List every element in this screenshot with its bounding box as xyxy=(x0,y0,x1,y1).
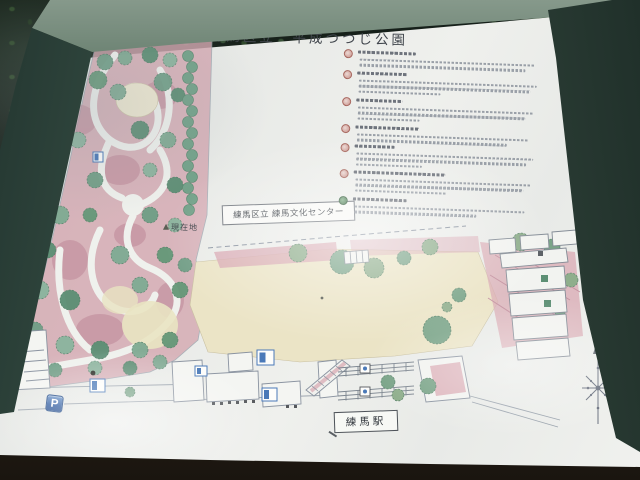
legend xyxy=(338,49,590,229)
legend-item xyxy=(340,169,586,178)
culture-center-label-text: 練馬区立 練馬文化センター xyxy=(233,205,344,221)
legend-marker-icon xyxy=(339,169,348,178)
current-location-label: 現在地 xyxy=(163,222,198,234)
legend-marker-icon xyxy=(340,143,349,152)
legend-item xyxy=(341,124,587,133)
photo-of-park-sign: 練馬区立 平成つつじ公園 練馬区立 練馬文化センター 現在地 練馬駅 P xyxy=(0,0,640,480)
legend-item xyxy=(342,97,588,106)
station-label-text: 練馬駅 xyxy=(346,413,387,429)
legend-marker-icon xyxy=(344,49,353,58)
legend-marker-icon xyxy=(342,97,351,106)
legend-item xyxy=(339,196,585,205)
current-location-text: 現在地 xyxy=(171,223,198,232)
current-location-pin-icon xyxy=(163,224,169,230)
legend-item xyxy=(343,70,589,79)
legend-marker-icon xyxy=(343,70,352,79)
parking-icon-letter: P xyxy=(50,397,59,410)
legend-marker-icon xyxy=(339,196,348,205)
station-label: 練馬駅 xyxy=(334,410,399,433)
parking-icon: P xyxy=(45,394,64,413)
legend-marker-icon xyxy=(341,124,350,133)
